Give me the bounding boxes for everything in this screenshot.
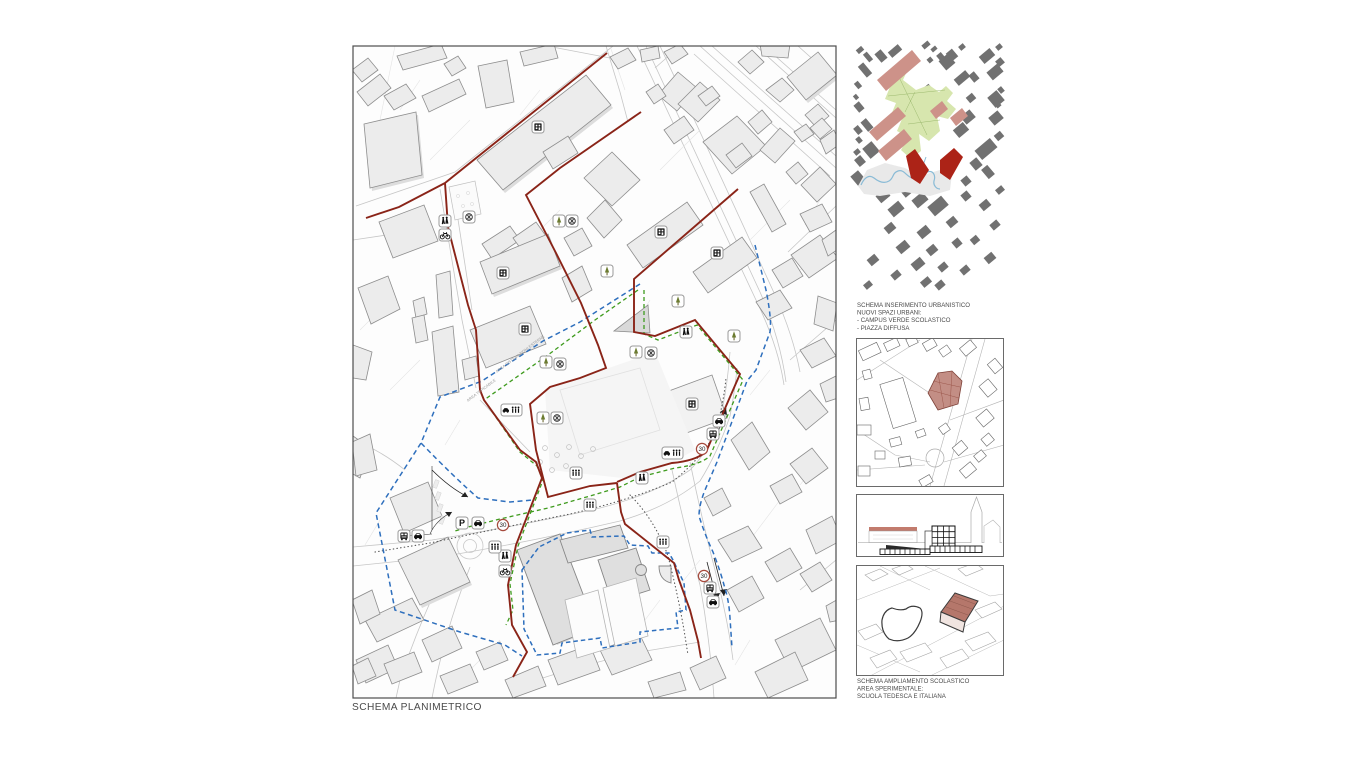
svg-text:SCHEMA INSERIMENTO URBANISTICO: SCHEMA INSERIMENTO URBANISTICO <box>857 302 970 309</box>
svg-text:NUOVI SPAZI URBANI:: NUOVI SPAZI URBANI: <box>857 310 922 317</box>
svg-text:SCHEMA AMPLIAMENTO SCOLASTICO: SCHEMA AMPLIAMENTO SCOLASTICO <box>857 678 970 685</box>
svg-text:SCHEMA PLANIMETRICO: SCHEMA PLANIMETRICO <box>352 702 482 713</box>
svg-text:AREA SPERIMENTALE:: AREA SPERIMENTALE: <box>857 686 924 693</box>
svg-text:- CAMPUS VERDE SCOLASTICO: - CAMPUS VERDE SCOLASTICO <box>857 317 951 324</box>
svg-text:- PIAZZA DIFFUSA: - PIAZZA DIFFUSA <box>857 325 910 332</box>
svg-text:SCUOLA TEDESCA E ITALIANA: SCUOLA TEDESCA E ITALIANA <box>857 693 947 700</box>
